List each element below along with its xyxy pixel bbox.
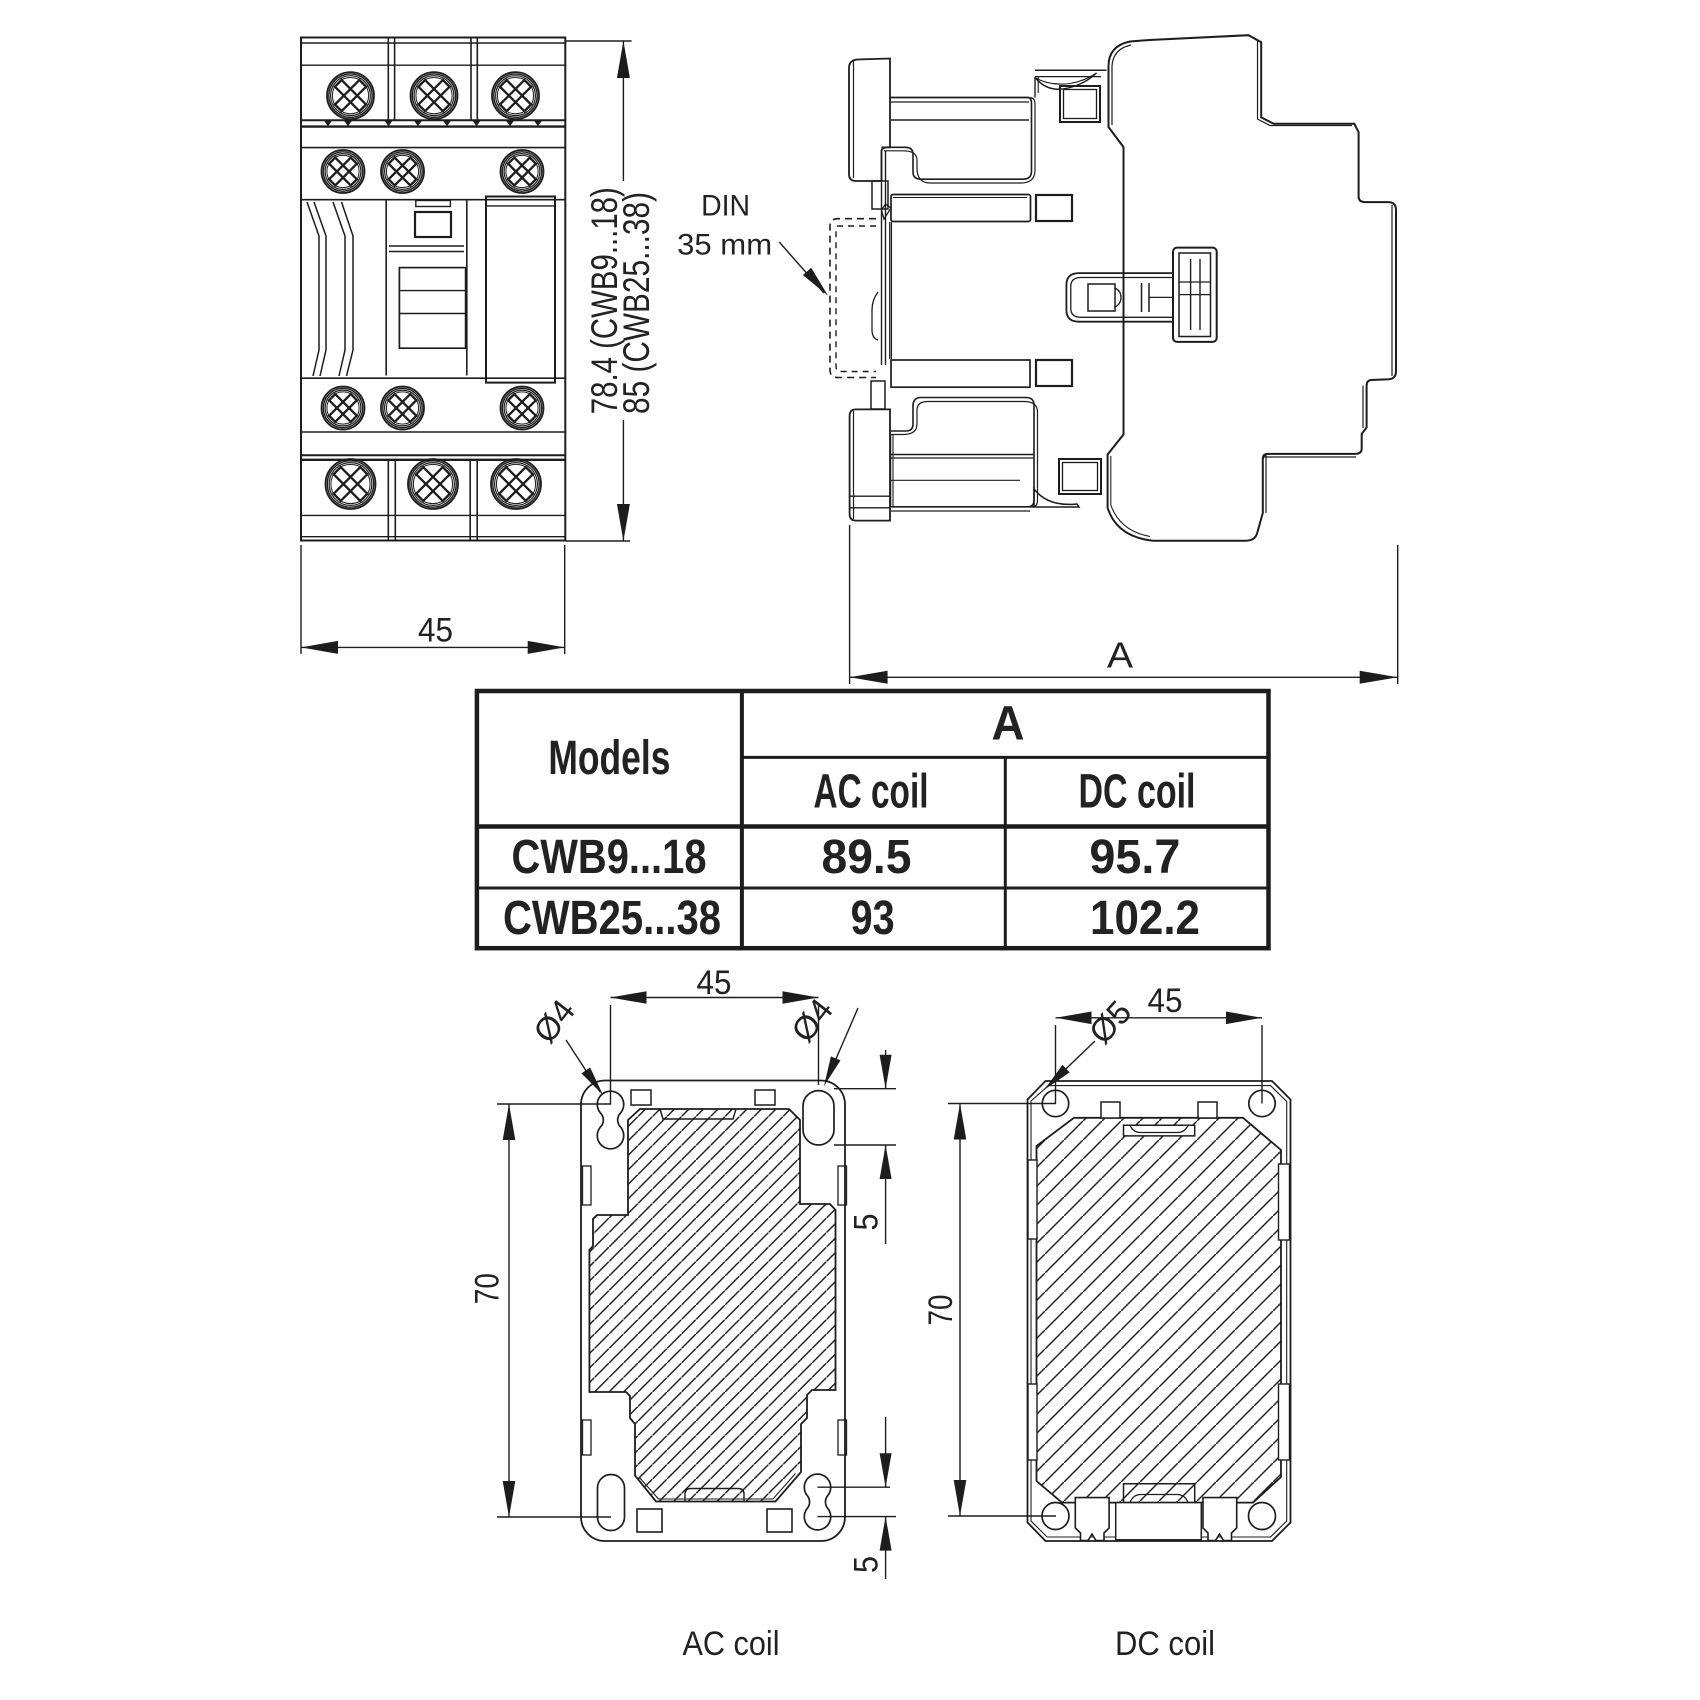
svg-text:85 (CWB25...38): 85 (CWB25...38): [615, 192, 657, 414]
svg-text:70: 70: [922, 1295, 960, 1326]
svg-text:DC coil: DC coil: [1079, 766, 1196, 819]
svg-text:AC coil: AC coil: [683, 1625, 780, 1663]
svg-text:5: 5: [848, 1214, 886, 1231]
svg-text:DIN: DIN: [701, 190, 750, 223]
svg-text:102.2: 102.2: [1090, 892, 1200, 945]
svg-text:93: 93: [851, 892, 895, 945]
svg-text:CWB25...38: CWB25...38: [503, 892, 721, 945]
svg-text:45: 45: [1148, 982, 1183, 1020]
svg-text:AC coil: AC coil: [814, 766, 929, 819]
svg-text:35 mm: 35 mm: [677, 228, 772, 261]
svg-text:45: 45: [697, 964, 732, 1002]
svg-text:A: A: [992, 698, 1025, 751]
svg-text:DC coil: DC coil: [1115, 1625, 1215, 1663]
svg-text:89.5: 89.5: [822, 831, 912, 884]
svg-text:45: 45: [418, 612, 453, 650]
svg-text:95.7: 95.7: [1089, 831, 1180, 884]
svg-text:CWB9...18: CWB9...18: [512, 831, 707, 884]
svg-text:5: 5: [848, 1556, 886, 1573]
svg-text:Models: Models: [548, 732, 670, 785]
svg-text:A: A: [1107, 635, 1133, 676]
svg-text:70: 70: [469, 1273, 507, 1304]
